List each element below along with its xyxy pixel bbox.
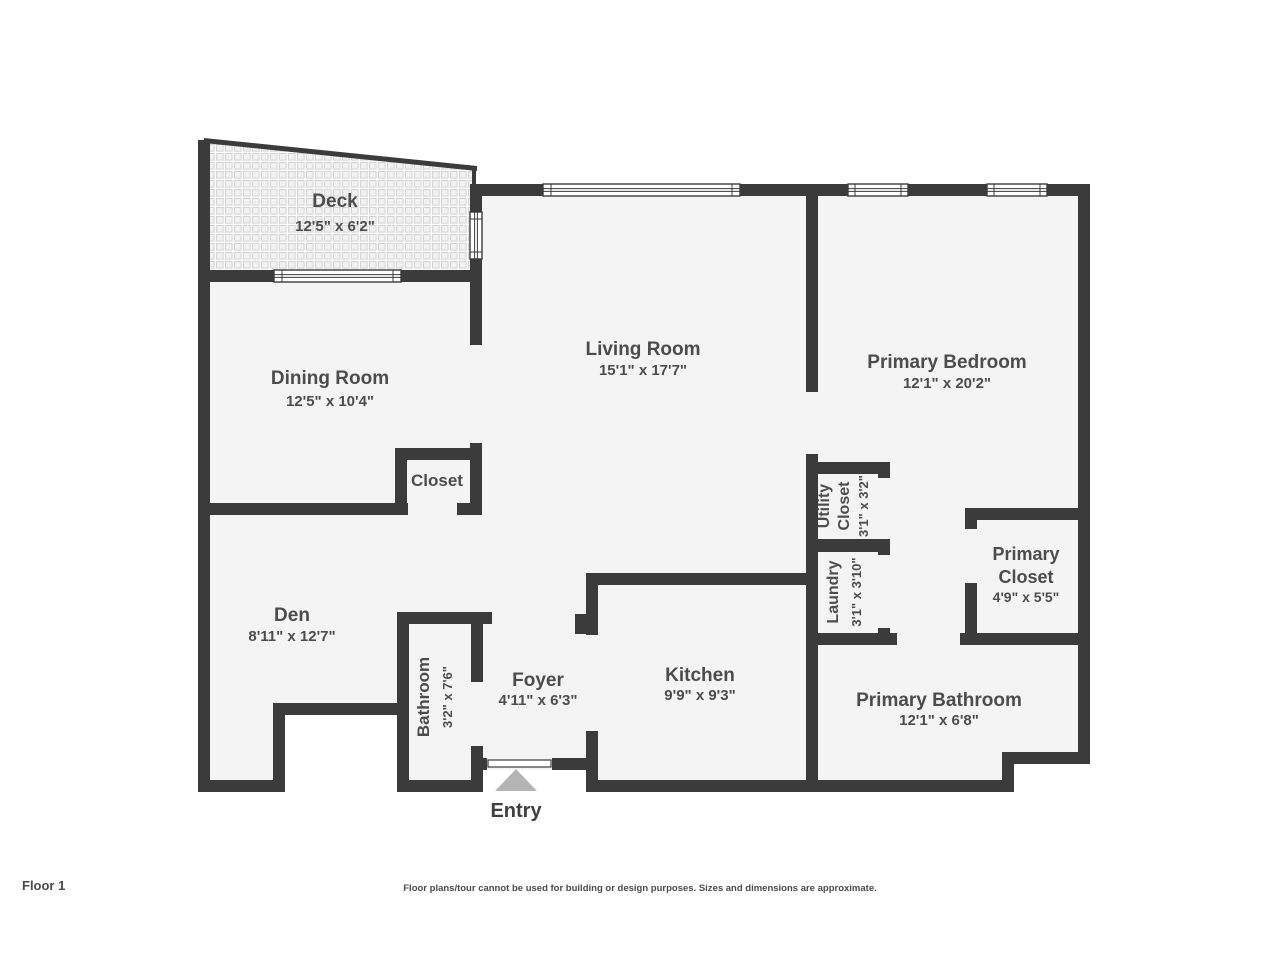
room-utility-closet: Utility Closet 3'1" x 3'2" <box>816 475 871 537</box>
room-primary-closet: Primary Closet 4'9" x 5'5" <box>992 544 1059 605</box>
deck-dims: 12'5" x 6'2" <box>295 218 375 235</box>
room-kitchen: Kitchen 9'9" x 9'3" <box>664 665 735 704</box>
utility-closet-label-1: Utility <box>816 484 833 529</box>
living-label: Living Room <box>585 339 700 360</box>
bedroom-window-1 <box>848 184 908 196</box>
den-dims: 8'11" x 12'7" <box>248 628 335 645</box>
primary-bathroom-dims: 12'1" x 6'8" <box>899 712 979 729</box>
dining-dims: 12'5" x 10'4" <box>286 393 374 410</box>
closet-label: Closet <box>411 471 463 490</box>
bathroom-notch-exterior <box>1014 764 1084 792</box>
kitchen-label: Kitchen <box>665 665 735 686</box>
entry-label: Entry <box>490 800 542 822</box>
primary-bathroom-label: Primary Bathroom <box>856 690 1022 711</box>
utility-closet-dims: 3'1" x 3'2" <box>856 475 871 537</box>
laundry-dims: 3'1" x 3'10" <box>849 557 864 626</box>
disclaimer-text: Floor plans/tour cannot be used for buil… <box>403 883 877 894</box>
primary-bedroom-label: Primary Bedroom <box>867 352 1026 373</box>
foyer-label: Foyer <box>512 670 564 691</box>
dining-deck-window <box>274 270 401 282</box>
dining-label: Dining Room <box>271 368 389 389</box>
room-closet: Closet <box>411 471 463 490</box>
kitchen-dims: 9'9" x 9'3" <box>664 687 735 704</box>
primary-closet-label-1: Primary <box>992 544 1059 564</box>
utility-closet-label-2: Closet <box>836 481 853 531</box>
floor-number-label: Floor 1 <box>22 878 65 893</box>
laundry-label: Laundry <box>825 560 842 623</box>
bedroom-window-2 <box>987 184 1047 196</box>
bathroom-dims: 3'2" x 7'6" <box>440 666 455 728</box>
entry-door-sill <box>488 760 551 767</box>
floor-plan-page: Deck 12'5" x 6'2" Dining Room 12'5" x 10… <box>0 0 1280 960</box>
living-dims: 15'1" x 17'7" <box>599 362 687 379</box>
room-living: Living Room 15'1" x 17'7" <box>585 339 700 379</box>
deck-label: Deck <box>312 191 358 212</box>
primary-closet-dims: 4'9" x 5'5" <box>993 589 1060 605</box>
primary-closet-label-2: Closet <box>998 567 1053 587</box>
living-room-window <box>543 184 740 196</box>
foyer-dims: 4'11" x 6'3" <box>499 692 578 709</box>
den-notch-exterior <box>285 715 397 792</box>
primary-bedroom-dims: 12'1" x 20'2" <box>903 375 991 392</box>
den-label: Den <box>274 605 310 626</box>
deck-door-window <box>470 212 482 259</box>
floor-plan-drawing: Deck 12'5" x 6'2" Dining Room 12'5" x 10… <box>0 0 1280 960</box>
bathroom-label: Bathroom <box>414 657 433 737</box>
